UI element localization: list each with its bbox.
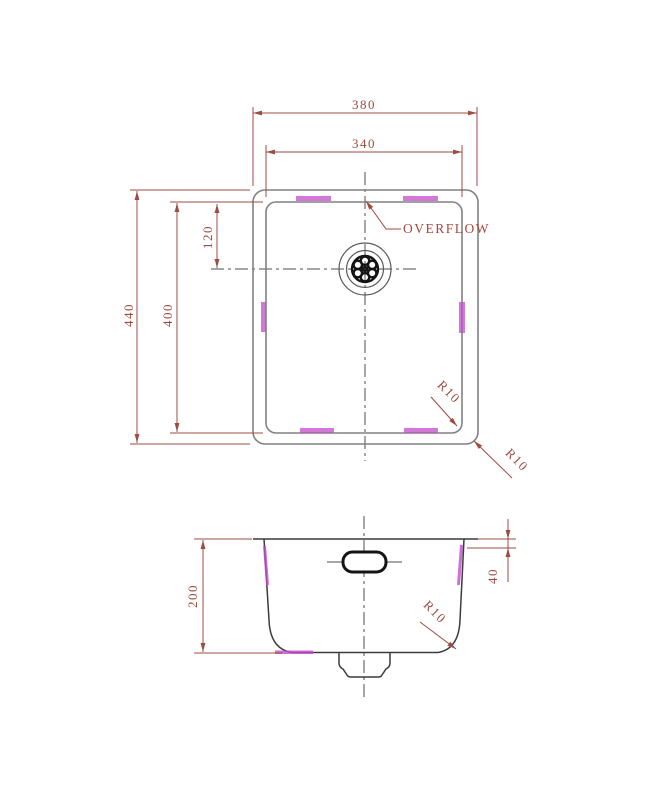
radius-outer-label: R10 xyxy=(503,445,532,474)
watermark-mark xyxy=(459,545,462,585)
dim-outer-height-label: 440 xyxy=(121,303,136,327)
dim-outer-height: 440 xyxy=(121,190,250,444)
dim-depth-label: 200 xyxy=(185,584,200,608)
dim-drain-offset-label: 120 xyxy=(200,225,215,249)
dim-drain-offset: 120 xyxy=(200,204,217,268)
watermark-mark xyxy=(261,302,266,332)
radius-inner-label: R10 xyxy=(435,377,464,406)
overflow-callout: OVERFLOW xyxy=(366,201,490,236)
radius-callout-section: R10 xyxy=(420,597,456,649)
dim-overflow-drop-label: 40 xyxy=(485,568,500,584)
overflow-slot xyxy=(327,552,402,572)
drawing-sheet: OVERFLOW 380 340 440 400 xyxy=(0,0,669,800)
watermark-mark xyxy=(300,428,334,433)
radius-section-label: R10 xyxy=(421,597,450,626)
watermark-mark xyxy=(459,302,465,333)
radius-callout-inner: R10 xyxy=(431,377,464,426)
watermark-mark xyxy=(265,546,268,585)
dim-inner-height-label: 400 xyxy=(160,303,175,327)
overflow-leader-line xyxy=(366,201,401,229)
watermark-mark xyxy=(403,196,438,201)
watermark-mark xyxy=(296,196,331,201)
sink-technical-drawing: OVERFLOW 380 340 440 400 xyxy=(0,0,669,800)
dim-outer-width-label: 380 xyxy=(352,97,376,112)
radius-callout-outer: R10 xyxy=(474,441,532,478)
dim-overflow-drop: 40 xyxy=(467,519,516,584)
dim-inner-width-label: 340 xyxy=(352,136,376,151)
top-view: OVERFLOW 380 340 440 400 xyxy=(121,97,532,478)
dim-inner-width: 340 xyxy=(266,136,462,197)
watermark-mark xyxy=(404,428,438,433)
section-view: 200 40 R10 xyxy=(185,516,516,698)
overflow-slot-opening xyxy=(343,552,386,572)
overflow-label: OVERFLOW xyxy=(403,221,490,236)
